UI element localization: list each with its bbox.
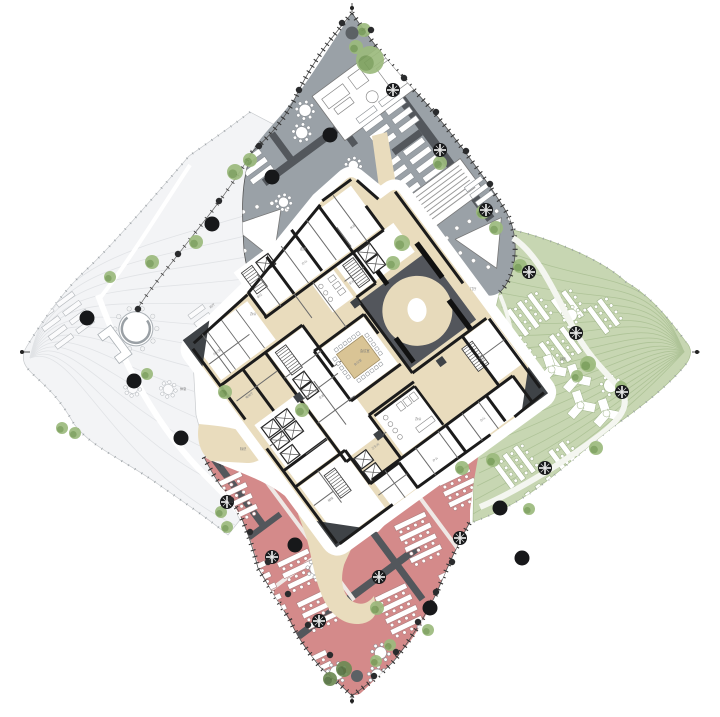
svg-text:办公: 办公	[250, 311, 257, 316]
svg-text:休息: 休息	[180, 386, 186, 391]
svg-text:走廊: 走廊	[300, 246, 307, 251]
svg-text:标识: 标识	[240, 446, 246, 451]
svg-text:办公: 办公	[415, 416, 422, 421]
svg-text:门厅: 门厅	[470, 286, 477, 291]
svg-text:会议室: 会议室	[360, 348, 370, 353]
svg-text:绿化: 绿化	[560, 356, 567, 361]
